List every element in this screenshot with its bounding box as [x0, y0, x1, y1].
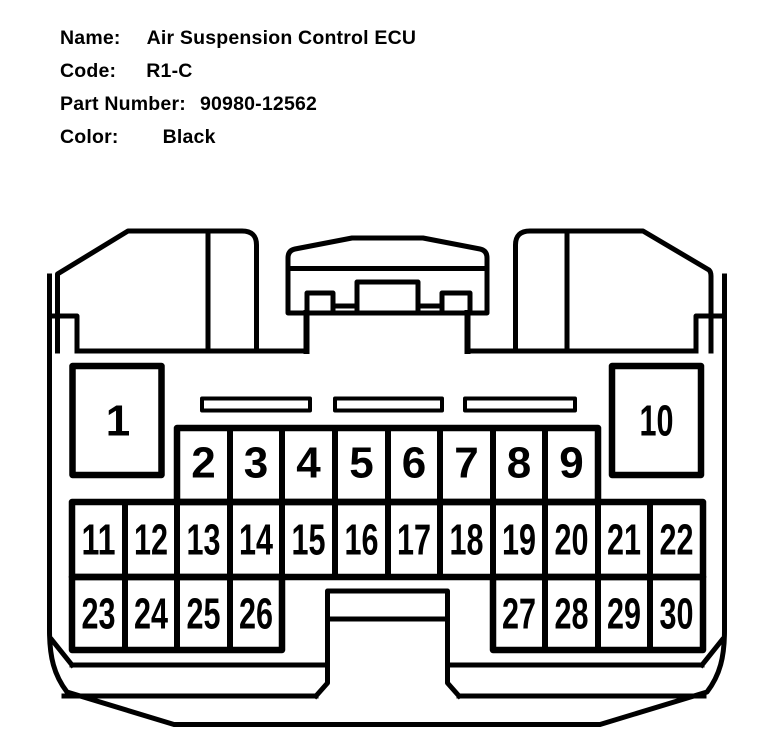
- pin-number-8: 8: [507, 439, 531, 488]
- pin-number-25: 25: [187, 590, 221, 639]
- pin-number-17: 17: [397, 516, 431, 565]
- pin-number-1: 1: [106, 397, 130, 446]
- pin-number-27: 27: [502, 590, 536, 639]
- pin-row-2-9-dividers: [230, 428, 545, 502]
- pin-number-12: 12: [134, 516, 168, 565]
- pin-number-28: 28: [555, 590, 589, 639]
- top-tab-left: [58, 231, 257, 351]
- pin-number-24: 24: [134, 590, 168, 639]
- pin-number-30: 30: [660, 590, 694, 639]
- pin-number-16: 16: [345, 516, 379, 565]
- pin-number-11: 11: [82, 516, 116, 565]
- pin-number-15: 15: [292, 516, 326, 565]
- top-tab-right: [516, 231, 712, 351]
- pin-number-19: 19: [502, 516, 536, 565]
- center-latch-middle-slot: [357, 282, 418, 313]
- pin-number-13: 13: [187, 516, 221, 565]
- index-slot-3: [465, 399, 575, 411]
- pin-number-14: 14: [239, 516, 273, 565]
- pin-number-22: 22: [660, 516, 694, 565]
- pin-number-20: 20: [555, 516, 589, 565]
- center-latch-outline: [288, 238, 487, 313]
- pin-number-2: 2: [191, 439, 215, 488]
- pin-number-18: 18: [450, 516, 484, 565]
- pin-number-23: 23: [82, 590, 116, 639]
- pin-number-9: 9: [559, 439, 583, 488]
- pin-number-21: 21: [607, 516, 641, 565]
- pin-number-6: 6: [402, 439, 426, 488]
- pin-number-3: 3: [244, 439, 268, 488]
- center-latch-left-slot: [307, 293, 333, 313]
- top-tab-left-notch: [51, 316, 77, 351]
- bottom-tongue-outline: [316, 591, 459, 696]
- pin-number-5: 5: [349, 439, 373, 488]
- pin-number-26: 26: [239, 590, 273, 639]
- pin-number-4: 4: [296, 439, 321, 488]
- connector-diagram: 1 2 3 4 5 6 7 8 9 10 11 12 13 14 15 16 1…: [0, 0, 768, 748]
- index-slot-2: [335, 399, 442, 411]
- center-latch-legs: [307, 313, 468, 351]
- page: { "header": { "fields": [ {"label": "Nam…: [0, 0, 768, 748]
- pin-number-7: 7: [454, 439, 478, 488]
- index-slot-1: [202, 399, 310, 411]
- pin-number-10: 10: [640, 397, 674, 446]
- pin-number-29: 29: [607, 590, 641, 639]
